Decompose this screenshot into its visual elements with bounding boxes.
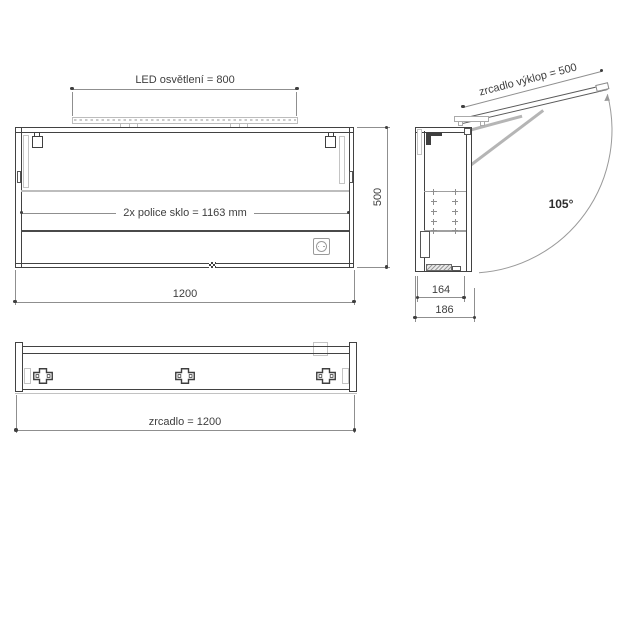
side-fitting-outline (24, 368, 31, 384)
mirror-width-label: zrcadlo = 1200 (149, 416, 221, 428)
back-edge-line (23, 346, 350, 347)
wall-mount-cross-icon (316, 368, 336, 384)
right-side-panel (349, 342, 357, 392)
wall-mount-cross-icon (33, 368, 53, 384)
mirror-width-dimension-line (16, 430, 355, 431)
depth-inner-label: 164 (432, 284, 450, 296)
technical-drawing-canvas: LED osvětlení = 800 2x police (0, 0, 630, 630)
mirror-front-line (15, 393, 357, 395)
dimension-endpoint-dot (413, 316, 417, 320)
mount-plate-outline (313, 342, 328, 357)
wall-mount-cross-icon (175, 368, 195, 384)
extension-line (16, 395, 17, 433)
opening-angle-label: 105° (549, 197, 574, 211)
dimension-endpoint-dot (14, 428, 18, 432)
back-panel-line (23, 353, 350, 354)
depth-dimension-line (415, 317, 475, 318)
left-side-panel (15, 342, 23, 392)
depth-dimension-line (418, 297, 465, 298)
dimension-endpoint-dot (462, 296, 466, 300)
dimension-endpoint-dot (353, 428, 357, 432)
swing-arc (0, 0, 630, 630)
depth-outer-label: 186 (435, 304, 453, 316)
extension-line (354, 395, 355, 433)
side-fitting-outline (342, 368, 349, 384)
front-edge-line (23, 389, 350, 390)
